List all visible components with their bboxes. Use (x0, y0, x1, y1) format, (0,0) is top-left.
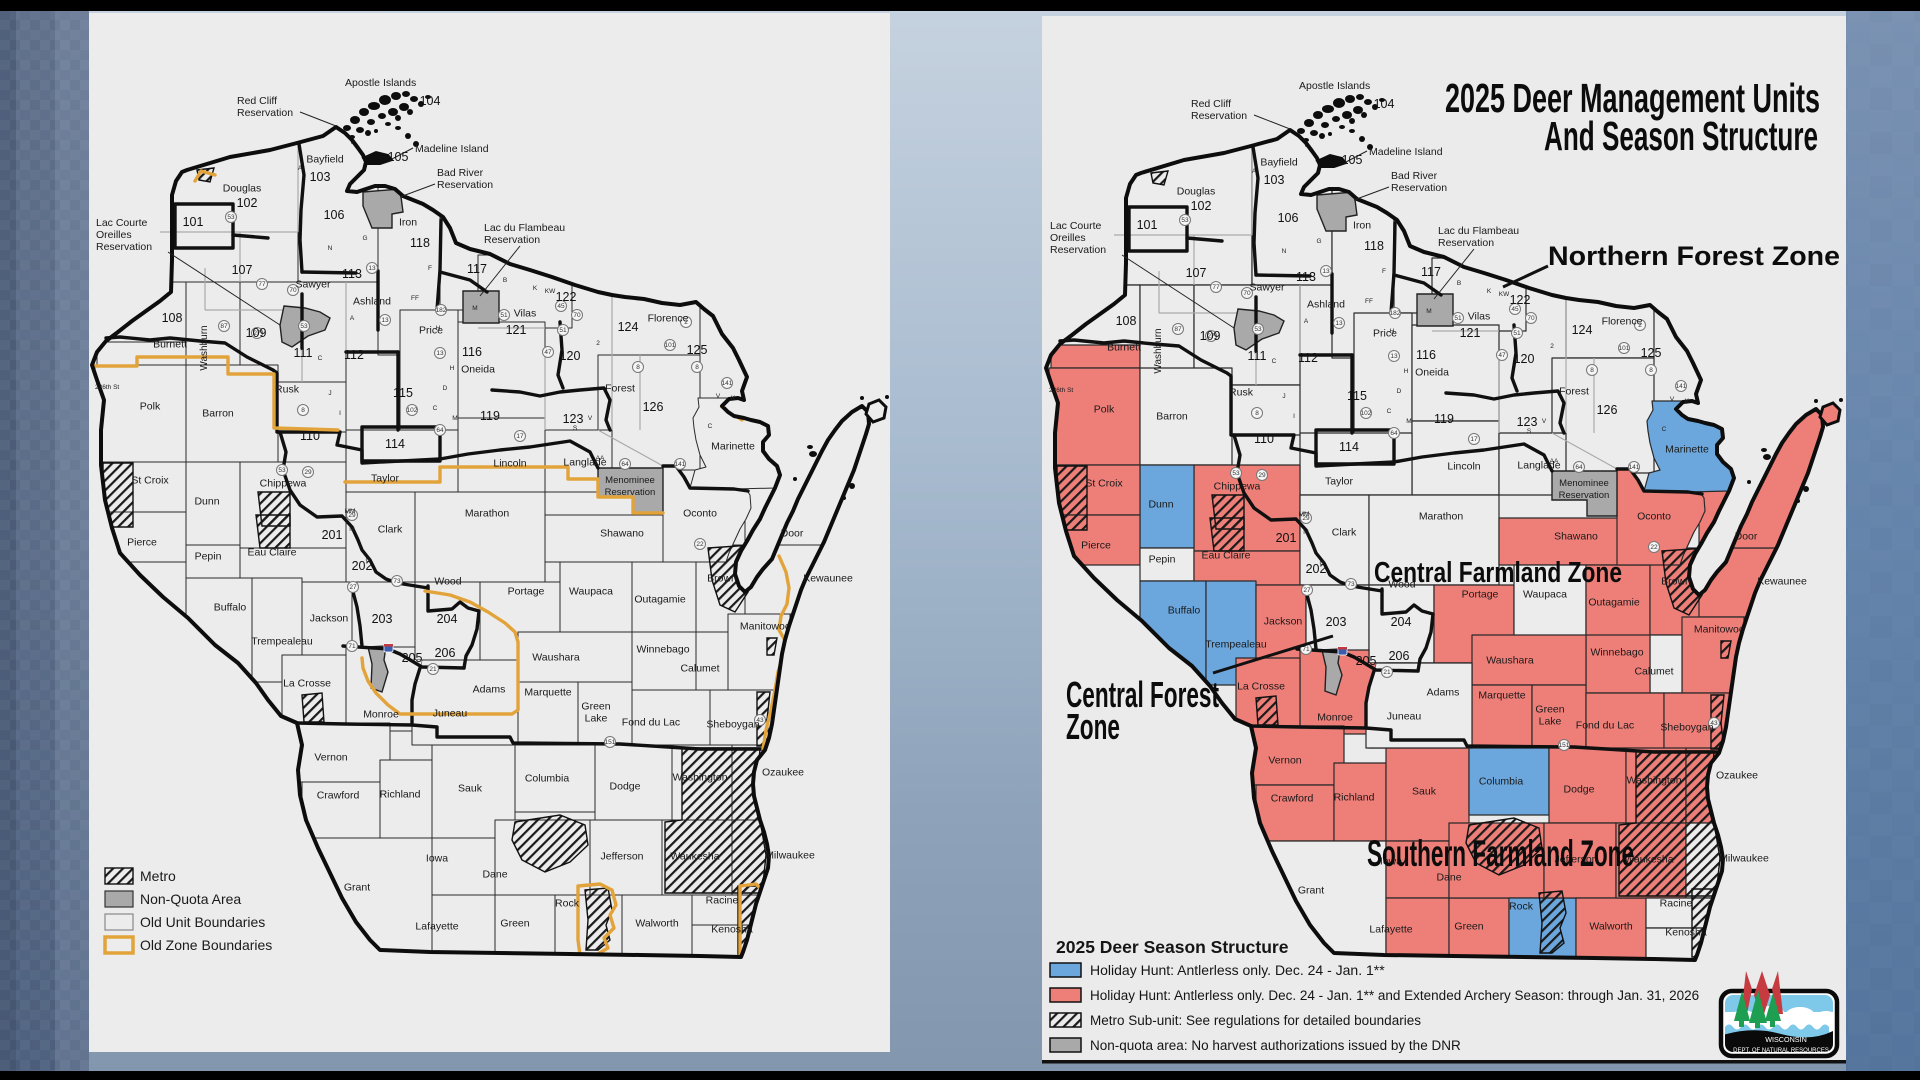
svg-text:Kewaunee: Kewaunee (1757, 576, 1807, 588)
svg-text:53: 53 (1232, 470, 1240, 477)
svg-text:205: 205 (402, 651, 423, 665)
svg-text:107: 107 (232, 263, 253, 277)
svg-text:Clark: Clark (378, 524, 403, 536)
svg-text:2: 2 (1550, 343, 1554, 350)
svg-text:Monroe: Monroe (363, 709, 399, 721)
svg-text:2025 Deer Season Structure: 2025 Deer Season Structure (1056, 937, 1289, 957)
svg-text:124: 124 (1572, 323, 1593, 337)
svg-text:C: C (1662, 426, 1667, 433)
svg-text:102: 102 (237, 196, 258, 210)
svg-text:119: 119 (480, 409, 500, 423)
svg-text:Washington: Washington (672, 772, 727, 784)
svg-text:Iron: Iron (399, 217, 417, 229)
svg-text:73: 73 (393, 578, 401, 585)
svg-text:119: 119 (1434, 412, 1454, 426)
svg-text:Red Cliff: Red Cliff (1191, 98, 1231, 110)
svg-text:206: 206 (1389, 649, 1410, 663)
svg-text:110: 110 (1254, 432, 1274, 446)
svg-text:Reservation: Reservation (437, 179, 493, 191)
svg-text:Dunn: Dunn (1148, 499, 1173, 511)
svg-text:115: 115 (1347, 389, 1367, 403)
svg-text:Lake: Lake (1539, 716, 1562, 728)
svg-text:Marathon: Marathon (465, 508, 510, 520)
svg-text:8: 8 (301, 407, 305, 414)
svg-text:103: 103 (310, 170, 331, 184)
svg-text:107: 107 (1186, 266, 1207, 280)
svg-text:Bayfield: Bayfield (306, 154, 344, 166)
svg-text:Lafayette: Lafayette (1369, 924, 1412, 936)
svg-text:Manitowoc: Manitowoc (740, 621, 790, 633)
svg-text:F: F (428, 265, 432, 272)
svg-text:Jackson: Jackson (1264, 616, 1303, 628)
svg-text:Buffalo: Buffalo (1168, 605, 1201, 617)
svg-text:141: 141 (1629, 464, 1640, 471)
svg-text:Jackson: Jackson (310, 613, 349, 625)
svg-text:Eau Claire: Eau Claire (1201, 550, 1250, 562)
svg-text:151: 151 (1559, 742, 1570, 749)
svg-text:Forest: Forest (605, 383, 635, 395)
svg-text:70: 70 (1527, 315, 1535, 322)
svg-text:102: 102 (407, 407, 418, 414)
svg-text:Forest: Forest (1559, 386, 1589, 398)
svg-text:201: 201 (322, 528, 343, 542)
svg-text:182: 182 (1390, 310, 1401, 317)
svg-text:Menominee: Menominee (605, 475, 655, 486)
svg-text:120: 120 (1514, 352, 1535, 366)
svg-text:M: M (1406, 418, 1411, 425)
svg-text:C: C (433, 405, 438, 412)
svg-text:141: 141 (722, 380, 733, 387)
svg-text:Pierce: Pierce (1081, 540, 1111, 552)
svg-text:Walworth: Walworth (635, 918, 679, 930)
svg-text:113: 113 (1296, 270, 1316, 284)
svg-text:121: 121 (1460, 326, 1481, 340)
svg-text:2: 2 (596, 340, 600, 347)
svg-text:N: N (328, 245, 333, 252)
svg-text:45: 45 (1511, 306, 1519, 313)
svg-text:Bad River: Bad River (1391, 170, 1438, 182)
svg-text:125: 125 (687, 343, 708, 357)
svg-text:A: A (1304, 318, 1309, 325)
svg-text:Reservation: Reservation (96, 241, 152, 253)
svg-text:Shawano: Shawano (600, 528, 644, 540)
svg-text:203: 203 (372, 612, 393, 626)
svg-text:8: 8 (1649, 367, 1653, 374)
svg-text:204: 204 (1391, 615, 1412, 629)
svg-text:Rock: Rock (1509, 901, 1534, 913)
svg-text:Portage: Portage (1462, 589, 1499, 601)
svg-text:Rusk: Rusk (1229, 387, 1254, 399)
svg-text:27: 27 (1303, 587, 1311, 594)
svg-text:124: 124 (618, 320, 639, 334)
svg-text:Dane: Dane (482, 869, 507, 881)
svg-text:87: 87 (220, 323, 228, 330)
svg-text:Lake: Lake (585, 713, 608, 725)
svg-text:A: A (350, 315, 355, 322)
svg-text:64: 64 (1575, 464, 1583, 471)
svg-text:Kenosha: Kenosha (711, 924, 753, 936)
svg-text:K: K (731, 395, 736, 402)
svg-text:Bayfield: Bayfield (1260, 157, 1298, 169)
svg-text:53: 53 (300, 323, 308, 330)
svg-text:Douglas: Douglas (1177, 186, 1216, 198)
svg-text:116: 116 (1416, 348, 1436, 362)
svg-text:47: 47 (544, 349, 552, 356)
svg-text:S: S (1527, 428, 1532, 435)
svg-text:F: F (1382, 268, 1386, 275)
svg-text:8: 8 (1255, 410, 1259, 417)
svg-text:201: 201 (1276, 531, 1297, 545)
svg-text:Reservation: Reservation (237, 107, 293, 119)
svg-text:Winnebago: Winnebago (1590, 647, 1643, 659)
svg-text:Lac Courte: Lac Courte (1050, 220, 1102, 232)
svg-text:103: 103 (1264, 173, 1285, 187)
svg-text:101: 101 (1137, 218, 1158, 232)
svg-text:113: 113 (342, 267, 362, 281)
svg-text:Jefferson: Jefferson (601, 851, 644, 863)
svg-text:118: 118 (410, 236, 430, 250)
svg-text:KW: KW (1499, 291, 1510, 298)
svg-text:Apostle Islands: Apostle Islands (1299, 80, 1370, 92)
svg-text:29: 29 (1258, 472, 1266, 479)
svg-text:FF: FF (1365, 298, 1373, 305)
svg-text:Ashland: Ashland (1307, 299, 1345, 311)
svg-text:Vernon: Vernon (1268, 755, 1301, 767)
svg-text:C: C (1272, 358, 1277, 365)
svg-text:64: 64 (1390, 430, 1398, 437)
svg-text:Calumet: Calumet (680, 663, 719, 675)
svg-text:Vernon: Vernon (314, 752, 347, 764)
svg-text:I: I (359, 543, 361, 550)
svg-text:202: 202 (1306, 562, 1327, 576)
svg-text:101: 101 (1619, 345, 1630, 352)
svg-text:S: S (573, 425, 578, 432)
svg-text:51: 51 (559, 327, 567, 334)
svg-text:Pierce: Pierce (127, 537, 157, 549)
svg-text:V: V (1670, 396, 1675, 403)
svg-text:13: 13 (381, 317, 389, 324)
svg-text:Door: Door (781, 528, 804, 540)
svg-text:Reservation: Reservation (1191, 110, 1247, 122)
svg-text:Chippewa: Chippewa (1214, 481, 1261, 493)
svg-text:Langlade: Langlade (563, 457, 606, 469)
svg-text:Barron: Barron (1156, 411, 1188, 423)
svg-text:KW: KW (545, 288, 556, 295)
svg-text:Oconto: Oconto (1637, 511, 1671, 523)
svg-text:Burnett: Burnett (153, 339, 187, 351)
svg-text:Brown: Brown (707, 573, 737, 585)
svg-text:Trempealeau: Trempealeau (251, 636, 313, 648)
svg-text:Ozaukee: Ozaukee (1716, 770, 1758, 782)
svg-text:114: 114 (385, 437, 405, 451)
svg-text:Taylor: Taylor (1325, 476, 1354, 488)
svg-text:Ashland: Ashland (353, 296, 391, 308)
svg-text:Old Unit Boundaries: Old Unit Boundaries (140, 914, 265, 930)
svg-text:Washington: Washington (1626, 775, 1681, 787)
svg-text:13: 13 (1335, 320, 1343, 327)
svg-text:Non-Quota Area: Non-Quota Area (140, 891, 241, 907)
svg-text:109: 109 (1200, 329, 1221, 343)
svg-text:106: 106 (1278, 211, 1299, 225)
svg-text:101: 101 (665, 342, 676, 349)
svg-text:206: 206 (435, 646, 456, 660)
svg-text:B: B (503, 277, 507, 284)
svg-text:121: 121 (506, 323, 527, 337)
svg-text:Metro: Metro (140, 868, 176, 884)
svg-text:M: M (452, 415, 457, 422)
svg-text:120: 120 (560, 349, 581, 363)
svg-text:J: J (1282, 393, 1285, 400)
svg-text:Reservation: Reservation (1559, 490, 1610, 501)
svg-text:C: C (318, 355, 323, 362)
svg-text:64: 64 (436, 427, 444, 434)
svg-text:Lincoln: Lincoln (1447, 461, 1480, 473)
svg-text:101: 101 (183, 215, 204, 229)
svg-text:Grant: Grant (1298, 885, 1324, 897)
svg-text:Lac Courte: Lac Courte (96, 217, 148, 229)
svg-text:H: H (1404, 368, 1409, 375)
svg-text:Outagamie: Outagamie (1588, 597, 1640, 609)
svg-text:29: 29 (304, 469, 312, 476)
svg-text:Marquette: Marquette (1478, 690, 1525, 702)
svg-text:Grant: Grant (344, 882, 370, 894)
svg-text:13: 13 (368, 265, 376, 272)
svg-text:La Crosse: La Crosse (1237, 681, 1285, 693)
svg-text:Adams: Adams (473, 684, 506, 696)
svg-text:Brown: Brown (1661, 576, 1691, 588)
svg-text:Door: Door (1735, 531, 1758, 543)
svg-text:Polk: Polk (1094, 404, 1115, 416)
svg-text:Rusk: Rusk (275, 384, 300, 396)
svg-text:21: 21 (1383, 669, 1391, 676)
svg-text:51: 51 (1513, 330, 1521, 337)
svg-text:Marquette: Marquette (524, 687, 571, 699)
svg-text:Metro Sub-unit: See regulation: Metro Sub-unit: See regulations for deta… (1090, 1013, 1421, 1028)
svg-text:G: G (362, 235, 367, 242)
svg-text:Iron: Iron (1353, 220, 1371, 232)
svg-text:WISCONSIN: WISCONSIN (1765, 1035, 1807, 1044)
svg-text:Oconto: Oconto (683, 508, 717, 520)
svg-text:MM: MM (345, 508, 356, 515)
svg-text:202: 202 (352, 559, 373, 573)
svg-text:Walworth: Walworth (1589, 921, 1633, 933)
svg-text:102: 102 (1191, 199, 1212, 213)
svg-text:A: A (1252, 168, 1257, 175)
svg-text:Waukesha: Waukesha (670, 851, 719, 863)
svg-text:Reservation: Reservation (1050, 244, 1106, 256)
svg-text:Outagamie: Outagamie (634, 594, 686, 606)
svg-text:203: 203 (1326, 615, 1347, 629)
svg-text:Fond du Lac: Fond du Lac (1576, 720, 1634, 732)
svg-text:Winnebago: Winnebago (636, 644, 689, 656)
svg-text:51: 51 (500, 312, 508, 319)
svg-text:Adams: Adams (1427, 687, 1460, 699)
svg-text:104: 104 (420, 94, 441, 108)
svg-text:D: D (1397, 388, 1402, 395)
svg-text:Shawano: Shawano (1554, 531, 1598, 543)
svg-text:Kewaunee: Kewaunee (803, 573, 853, 585)
svg-text:Taylor: Taylor (371, 473, 400, 485)
svg-text:H: H (450, 365, 455, 372)
svg-text:110: 110 (300, 429, 320, 443)
svg-text:Trempealeau: Trempealeau (1205, 639, 1267, 651)
svg-text:Crawford: Crawford (1271, 793, 1314, 805)
svg-text:Sauk: Sauk (458, 783, 483, 795)
svg-text:Monroe: Monroe (1317, 712, 1353, 724)
svg-text:K: K (1487, 288, 1492, 295)
svg-text:Sauk: Sauk (1412, 786, 1437, 798)
svg-text:Lac du Flambeau: Lac du Flambeau (484, 222, 565, 234)
svg-text:13: 13 (1322, 268, 1330, 275)
svg-text:Marinette: Marinette (1665, 444, 1709, 456)
svg-text:Pepin: Pepin (1149, 554, 1176, 566)
svg-text:MM: MM (1299, 511, 1310, 518)
svg-text:Juneau: Juneau (1387, 711, 1422, 723)
svg-text:87: 87 (1174, 326, 1182, 333)
svg-text:117: 117 (467, 262, 487, 276)
svg-text:DEPT. OF NATURAL RESOURCES: DEPT. OF NATURAL RESOURCES (1733, 1048, 1829, 1054)
svg-text:Eau Claire: Eau Claire (247, 547, 296, 559)
svg-text:Kenosha: Kenosha (1665, 927, 1707, 939)
svg-text:La Crosse: La Crosse (283, 678, 331, 690)
svg-text:13: 13 (436, 350, 444, 357)
svg-text:104: 104 (1374, 97, 1395, 111)
svg-text:Rock: Rock (555, 898, 580, 910)
svg-text:Pepin: Pepin (195, 551, 222, 563)
svg-text:53: 53 (227, 214, 235, 221)
svg-text:Burnett: Burnett (1107, 342, 1141, 354)
svg-text:116: 116 (462, 345, 482, 359)
svg-text:Reservation: Reservation (605, 487, 656, 498)
svg-text:Green: Green (1535, 704, 1564, 716)
svg-text:Milwaukee: Milwaukee (1719, 853, 1769, 865)
svg-text:226th St: 226th St (1049, 387, 1073, 394)
svg-text:I: I (339, 410, 341, 417)
svg-text:Green: Green (500, 918, 529, 930)
svg-text:118: 118 (1364, 239, 1384, 253)
svg-text:8: 8 (1590, 367, 1594, 374)
svg-text:Clark: Clark (1332, 527, 1357, 539)
svg-text:Waushara: Waushara (532, 652, 580, 664)
svg-text:51: 51 (1454, 315, 1462, 322)
svg-text:Buffalo: Buffalo (214, 602, 247, 614)
svg-text:Chippewa: Chippewa (260, 478, 307, 490)
svg-text:Menominee: Menominee (1559, 478, 1609, 489)
svg-text:Langlade: Langlade (1517, 460, 1560, 472)
svg-text:Columbia: Columbia (1479, 776, 1524, 788)
svg-text:226th St: 226th St (95, 384, 119, 391)
svg-text:Waupaca: Waupaca (569, 586, 613, 598)
svg-text:D: D (443, 385, 448, 392)
svg-text:St Croix: St Croix (131, 475, 169, 487)
svg-text:Florence: Florence (1602, 316, 1643, 328)
svg-text:M: M (1426, 308, 1431, 315)
svg-text:Milwaukee: Milwaukee (765, 850, 815, 862)
svg-text:71: 71 (1302, 646, 1310, 653)
svg-text:Reservation: Reservation (1438, 237, 1494, 249)
svg-text:53: 53 (278, 467, 286, 474)
svg-text:123: 123 (563, 412, 584, 426)
svg-text:111: 111 (1247, 349, 1266, 363)
svg-text:Oreilles: Oreilles (1050, 232, 1086, 244)
svg-text:Sheboygan: Sheboygan (706, 719, 759, 731)
svg-text:Washburn: Washburn (199, 325, 210, 370)
svg-text:112: 112 (1298, 351, 1318, 365)
svg-text:Price: Price (1373, 328, 1397, 340)
svg-text:Red Cliff: Red Cliff (237, 95, 277, 107)
svg-text:204: 204 (437, 612, 458, 626)
svg-text:8: 8 (695, 364, 699, 371)
svg-text:Dodge: Dodge (1564, 784, 1595, 796)
svg-text:53: 53 (1254, 326, 1262, 333)
svg-text:Florence: Florence (648, 313, 689, 325)
svg-text:V: V (588, 415, 593, 422)
svg-text:Zone: Zone (1066, 706, 1120, 747)
svg-text:C: C (1387, 408, 1392, 415)
svg-text:St Croix: St Croix (1085, 478, 1123, 490)
svg-text:And Season Structure: And Season Structure (1544, 113, 1818, 159)
svg-text:Reservation: Reservation (1391, 182, 1447, 194)
svg-text:17: 17 (1470, 436, 1478, 443)
svg-text:108: 108 (1116, 314, 1137, 328)
svg-text:Barron: Barron (202, 408, 234, 420)
svg-text:115: 115 (393, 386, 413, 400)
svg-text:Juneau: Juneau (433, 708, 468, 720)
svg-text:Madeline Island: Madeline Island (1369, 146, 1443, 158)
svg-text:Marinette: Marinette (711, 441, 755, 453)
svg-text:Oneida: Oneida (461, 364, 495, 376)
svg-text:27: 27 (349, 584, 357, 591)
svg-text:Dodge: Dodge (610, 781, 641, 793)
svg-text:Ozaukee: Ozaukee (762, 767, 804, 779)
svg-text:K: K (1685, 398, 1690, 405)
svg-text:Bad River: Bad River (437, 167, 484, 179)
svg-text:I: I (1293, 413, 1295, 420)
svg-text:53: 53 (1181, 217, 1189, 224)
svg-text:Richland: Richland (1334, 792, 1375, 804)
svg-text:Manitowoc: Manitowoc (1694, 624, 1744, 636)
svg-text:M: M (472, 305, 477, 312)
svg-text:Old Zone Boundaries: Old Zone Boundaries (140, 937, 272, 953)
svg-text:Central Farmland Zone: Central Farmland Zone (1374, 557, 1622, 589)
svg-text:17: 17 (516, 433, 524, 440)
svg-text:126: 126 (1597, 403, 1618, 417)
svg-text:FF: FF (411, 295, 419, 302)
svg-text:N: N (1282, 248, 1287, 255)
svg-text:Vilas: Vilas (1468, 311, 1491, 323)
svg-text:J: J (328, 390, 331, 397)
svg-text:B: B (1457, 280, 1461, 287)
svg-text:Green: Green (581, 701, 610, 713)
svg-text:108: 108 (162, 311, 183, 325)
svg-text:Crawford: Crawford (317, 790, 360, 802)
svg-text:71: 71 (348, 643, 356, 650)
svg-text:Dunn: Dunn (194, 496, 219, 508)
svg-text:22: 22 (696, 541, 704, 548)
svg-text:111: 111 (293, 346, 312, 360)
svg-text:Sawyer: Sawyer (295, 279, 331, 291)
svg-text:141: 141 (675, 461, 686, 468)
svg-text:Sheboygan: Sheboygan (1660, 722, 1713, 734)
svg-text:Wood: Wood (434, 576, 461, 588)
svg-text:Northern Forest Zone: Northern Forest Zone (1548, 241, 1840, 271)
svg-text:V: V (716, 393, 721, 400)
svg-text:Oneida: Oneida (1415, 367, 1449, 379)
svg-text:Holiday Hunt: Antlerless only.: Holiday Hunt: Antlerless only. Dec. 24 -… (1090, 962, 1385, 978)
svg-text:112: 112 (344, 348, 364, 362)
svg-text:Holiday Hunt: Antlerless only.: Holiday Hunt: Antlerless only. Dec. 24 -… (1090, 988, 1699, 1003)
svg-text:Waupaca: Waupaca (1523, 589, 1567, 601)
